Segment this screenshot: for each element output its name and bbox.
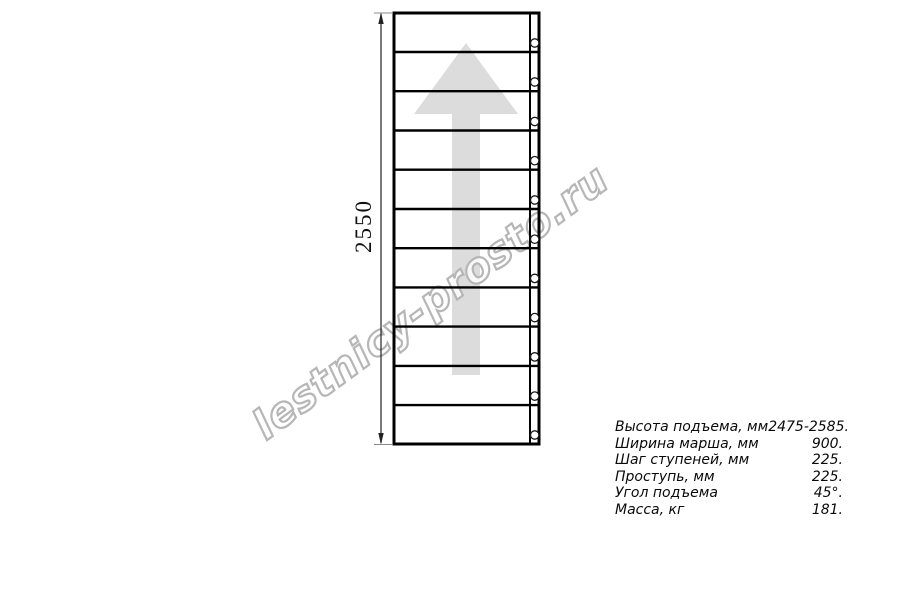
- spec-value: 45°.: [814, 485, 843, 502]
- spec-row-angle: Угол подъема 45°.: [615, 485, 843, 502]
- hole-icon: [531, 117, 539, 125]
- spec-row-mass: Масса, кг 181.: [615, 502, 843, 519]
- spec-row-tread: Проступь, мм 225.: [615, 469, 843, 486]
- spec-label: Ширина марша, мм: [615, 436, 759, 453]
- dimension-arrow-down-icon: [378, 433, 383, 445]
- hole-icon: [531, 78, 539, 86]
- spec-value: 900.: [812, 436, 843, 453]
- hole-icon: [531, 157, 539, 165]
- hole-icon: [531, 274, 539, 282]
- spec-label: Масса, кг: [615, 502, 684, 519]
- specs-table: Высота подъема, мм 2475-2585. Ширина мар…: [615, 419, 843, 519]
- spec-row-step-pitch: Шаг ступеней, мм 225.: [615, 452, 843, 469]
- hole-icon: [531, 431, 539, 439]
- hole-icon: [531, 235, 539, 243]
- dimension-arrow-up-icon: [378, 13, 383, 25]
- spec-label: Высота подъема, мм: [615, 419, 768, 436]
- spec-row-height: Высота подъема, мм 2475-2585.: [615, 419, 843, 436]
- hole-icon: [531, 313, 539, 321]
- hole-icon: [531, 353, 539, 361]
- spec-row-width: Ширина марша, мм 900.: [615, 436, 843, 453]
- spec-value: 225.: [812, 452, 843, 469]
- spec-label: Угол подъема: [615, 485, 718, 502]
- hole-icon: [531, 39, 539, 47]
- spec-label: Проступь, мм: [615, 469, 715, 486]
- hole-icon: [531, 196, 539, 204]
- spec-value: 181.: [812, 502, 843, 519]
- dimension-value: 2550: [351, 199, 376, 253]
- spec-label: Шаг ступеней, мм: [615, 452, 749, 469]
- drawing-canvas: lestnicy-prosto.ru: [0, 0, 900, 600]
- hole-icon: [531, 392, 539, 400]
- spec-value: 2475-2585.: [768, 419, 849, 436]
- spec-value: 225.: [812, 469, 843, 486]
